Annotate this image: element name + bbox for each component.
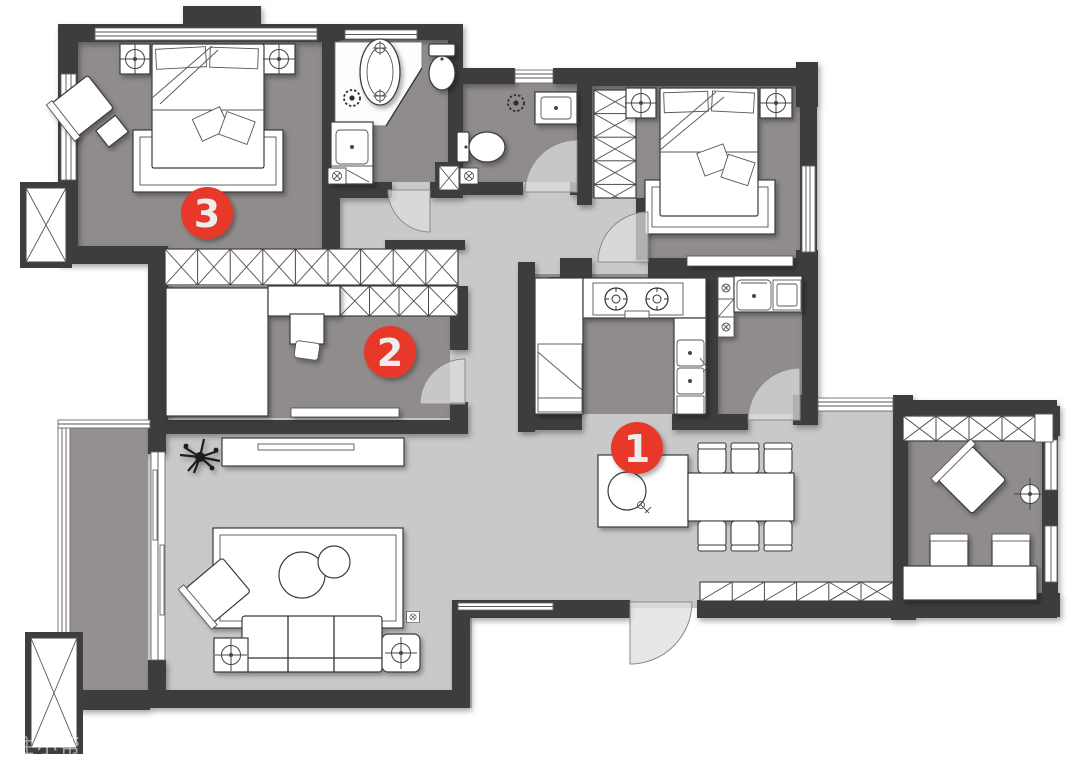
study-window-2 (1045, 526, 1057, 582)
marker-3: 3 (181, 187, 233, 239)
marker-3-label: 3 (194, 192, 220, 236)
study-window-1 (1045, 440, 1057, 490)
dining-chair (764, 443, 792, 473)
desk (290, 314, 324, 344)
dining-chair (764, 521, 792, 551)
toilet-icon (429, 44, 455, 90)
marker-2: 2 (364, 326, 416, 378)
cabinet-study-end (1035, 414, 1053, 442)
wardrobe-strip-room2 (340, 286, 458, 316)
floor-plan-drawing: 1 2 3 住小帮@设计馆 (0, 0, 1080, 771)
dining-table-icon (688, 473, 794, 521)
chair (992, 538, 1030, 568)
dining-chair (731, 521, 759, 551)
platform-bed (166, 288, 268, 416)
coffee-table (318, 546, 350, 578)
chair (930, 538, 968, 568)
toilet-icon (457, 132, 505, 162)
entry-sill (458, 603, 553, 610)
tv-console (222, 438, 404, 466)
floor-drain-icon (328, 168, 346, 184)
bedroom-3-window-top (95, 28, 317, 40)
dining-chair (731, 443, 759, 473)
console (687, 256, 793, 266)
bedroom-2-window (802, 166, 815, 252)
marker-2-label: 2 (377, 331, 403, 375)
marker-1: 1 (611, 422, 663, 474)
tv (258, 444, 354, 450)
floor-drain-icon (460, 168, 478, 184)
marker-1-label: 1 (624, 427, 650, 471)
low-cabinet (291, 408, 399, 417)
watermark: 住小帮@设计馆 (14, 734, 175, 758)
cabinet-strip-entry (700, 582, 893, 601)
chair (294, 340, 320, 360)
shaft-bathroom (435, 162, 463, 194)
cabinet (268, 286, 340, 316)
cabinet-strip-study (903, 416, 1035, 441)
stove-burner-icon (646, 288, 668, 310)
shaft-top-left (20, 182, 72, 268)
sofa-icon (242, 616, 382, 672)
east-window (818, 398, 893, 411)
wardrobe-strip-bedroom3 (165, 249, 458, 285)
bathroom-2-window (515, 70, 553, 83)
balcony-sliding-window (151, 452, 165, 660)
tall-cabinet (718, 277, 734, 337)
bathroom-1-window (345, 30, 417, 39)
hallway-floor (455, 182, 577, 274)
dining-chair (698, 521, 726, 551)
stove-burner-icon (605, 288, 627, 310)
desk (903, 566, 1037, 600)
floor-drain-icon (407, 611, 420, 622)
bathtub-icon (360, 39, 400, 105)
door-swing-entry (630, 602, 692, 664)
dining-chair (698, 443, 726, 473)
wash-basin-icon (535, 92, 577, 124)
floor-plan-canvas: 1 2 3 住小帮@设计馆 (0, 0, 1080, 771)
